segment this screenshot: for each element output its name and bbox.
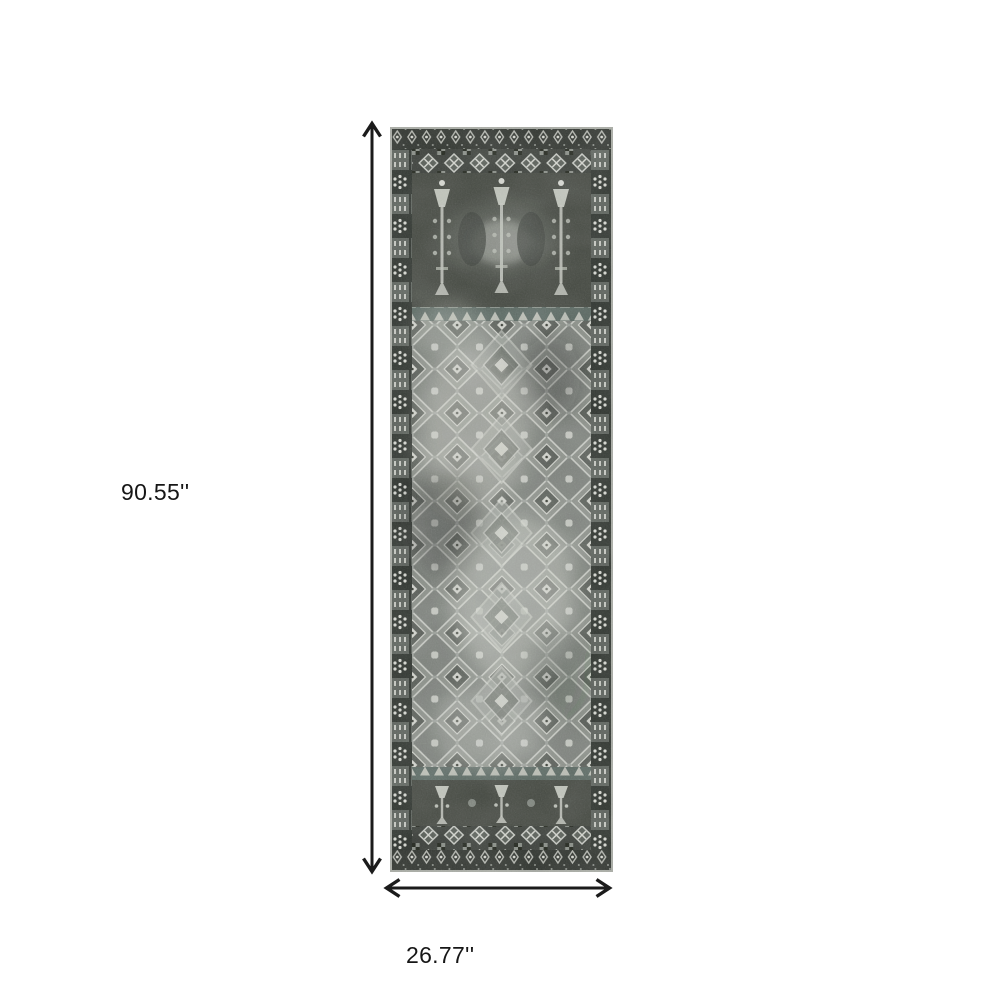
- height-dimension-label: 90.55'': [121, 479, 189, 506]
- arrow-left-icon: [387, 880, 400, 897]
- product-dimension-diagram: 90.55'' 26.77'': [0, 0, 1000, 1000]
- arrow-down-icon: [364, 859, 381, 872]
- arrow-up-icon: [364, 124, 381, 137]
- rug-image: [390, 127, 613, 872]
- rug-art: [390, 127, 613, 872]
- width-dimension-label: 26.77'': [406, 942, 474, 969]
- rug-tint: [390, 127, 613, 872]
- arrow-right-icon: [597, 880, 610, 897]
- vertical-dimension-arrow: [364, 124, 381, 872]
- horizontal-dimension-arrow: [387, 880, 610, 897]
